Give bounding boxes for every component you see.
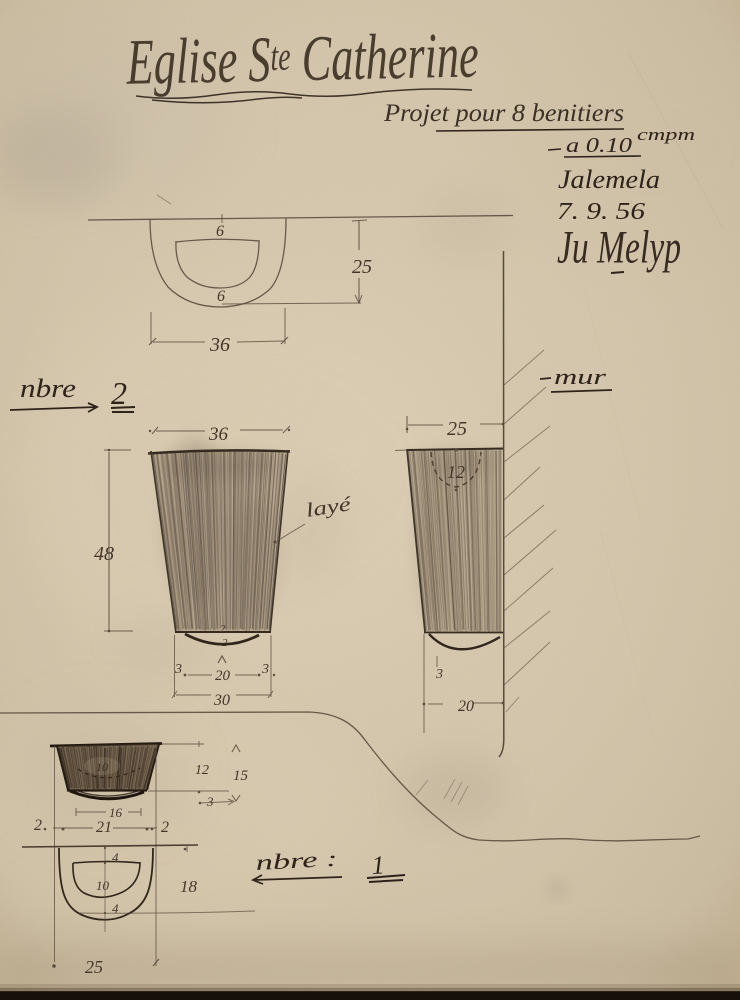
svg-text:4: 4 bbox=[112, 901, 119, 916]
svg-text:20: 20 bbox=[458, 698, 474, 715]
svg-text:25: 25 bbox=[85, 957, 103, 977]
svg-text:10: 10 bbox=[96, 878, 110, 893]
svg-text:cmpm: cmpm bbox=[637, 125, 695, 144]
svg-text:6: 6 bbox=[217, 288, 225, 305]
svg-text:25: 25 bbox=[352, 256, 372, 278]
svg-text:25: 25 bbox=[447, 418, 467, 440]
svg-text:2: 2 bbox=[34, 817, 42, 834]
svg-text:Eglise Ste Catherine: Eglise Ste Catherine bbox=[125, 19, 479, 98]
svg-text:3: 3 bbox=[261, 662, 269, 677]
svg-text:18: 18 bbox=[180, 877, 198, 896]
svg-text:12: 12 bbox=[195, 763, 209, 778]
svg-text:48: 48 bbox=[94, 543, 114, 565]
svg-text:4: 4 bbox=[112, 850, 119, 865]
svg-text:10: 10 bbox=[96, 760, 108, 774]
svg-text:1: 1 bbox=[371, 850, 385, 880]
svg-text:21: 21 bbox=[96, 819, 112, 836]
svg-text:12: 12 bbox=[447, 462, 465, 482]
svg-text:16: 16 bbox=[109, 805, 123, 820]
svg-text:Jalemela: Jalemela bbox=[558, 165, 660, 194]
svg-text:3: 3 bbox=[174, 662, 182, 677]
svg-text:3: 3 bbox=[206, 794, 214, 809]
svg-text:36: 36 bbox=[208, 424, 229, 445]
svg-text:2: 2 bbox=[161, 819, 169, 836]
svg-text:30: 30 bbox=[213, 692, 230, 709]
svg-text:2: 2 bbox=[111, 375, 127, 411]
svg-text:20: 20 bbox=[215, 668, 231, 684]
svg-text:3: 3 bbox=[435, 667, 443, 682]
svg-text:nbre :: nbre : bbox=[255, 846, 338, 875]
svg-text:mur: mur bbox=[554, 364, 607, 389]
svg-text:2: 2 bbox=[220, 623, 226, 635]
svg-text:Ju Melyp: Ju Melyp bbox=[557, 220, 681, 273]
svg-text:Projet pour 8 benitiers: Projet pour 8 benitiers bbox=[383, 100, 624, 127]
svg-text:a 0.10: a 0.10 bbox=[566, 133, 633, 157]
svg-text:nbre: nbre bbox=[20, 374, 76, 403]
svg-text:2: 2 bbox=[222, 637, 228, 649]
svg-text:6: 6 bbox=[216, 223, 224, 240]
svg-text:15: 15 bbox=[233, 768, 249, 784]
svg-text:36: 36 bbox=[209, 334, 230, 356]
